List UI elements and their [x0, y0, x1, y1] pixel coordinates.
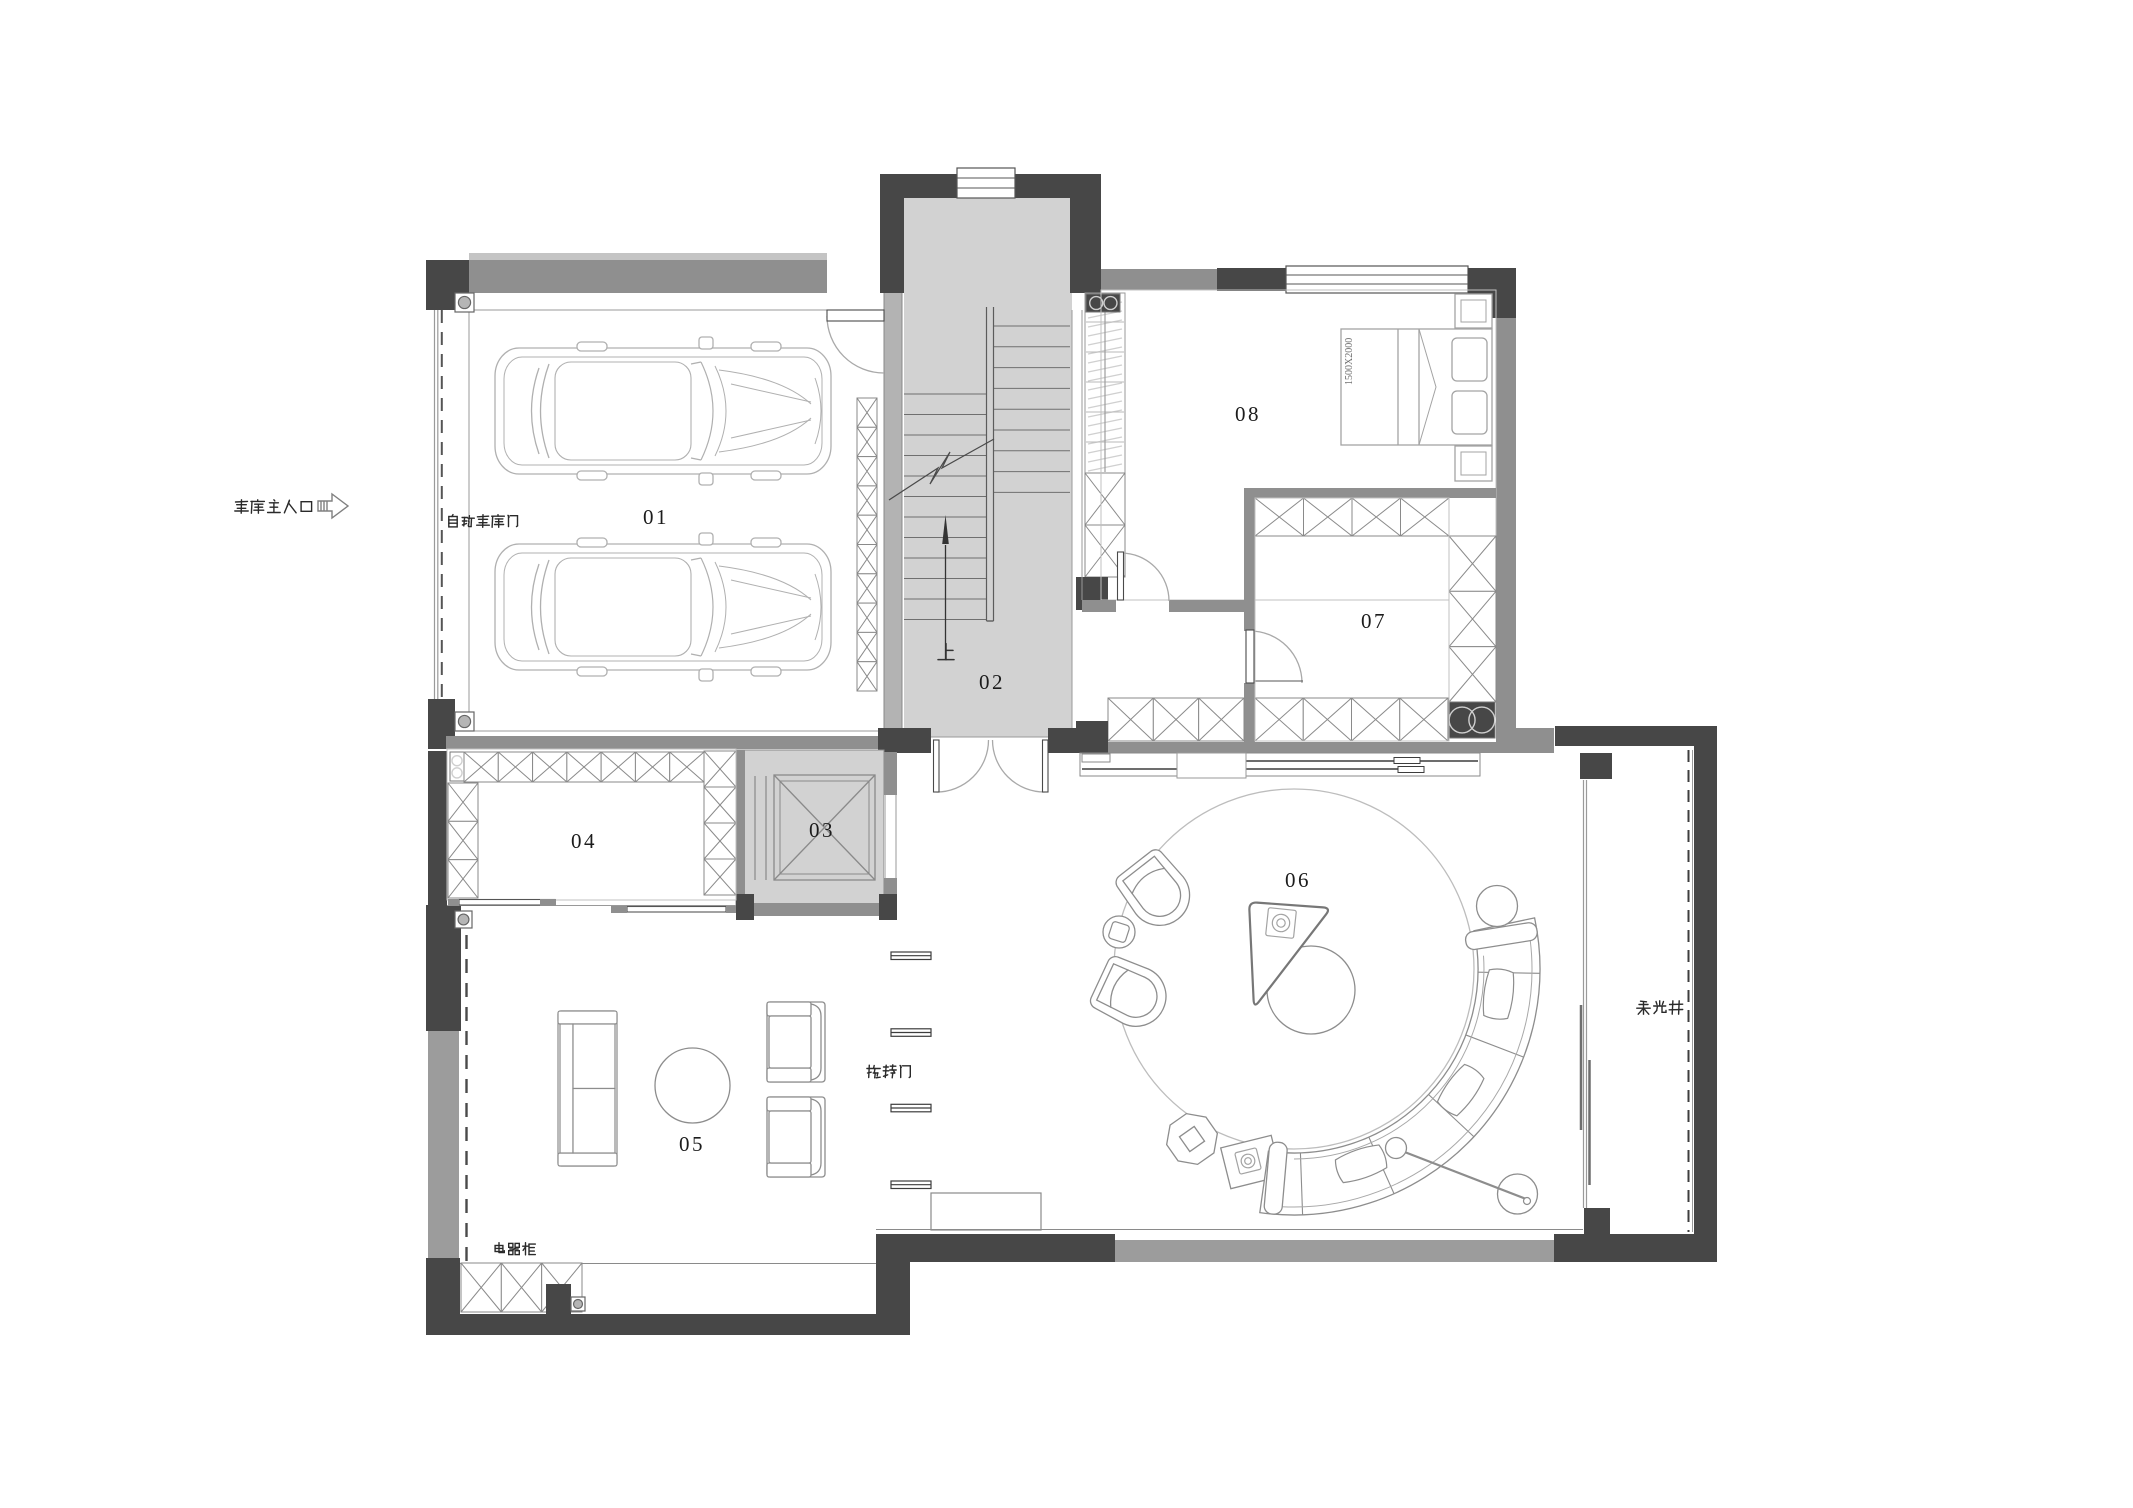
- svg-text:1500X2000: 1500X2000: [1344, 338, 1355, 385]
- svg-text:03: 03: [809, 818, 835, 842]
- svg-text:07: 07: [1361, 609, 1387, 633]
- svg-text:01: 01: [643, 505, 669, 529]
- svg-text:08: 08: [1235, 402, 1261, 426]
- svg-text:02: 02: [979, 670, 1005, 694]
- svg-text:05: 05: [679, 1132, 705, 1156]
- svg-text:06: 06: [1285, 868, 1311, 892]
- svg-text:04: 04: [571, 829, 597, 853]
